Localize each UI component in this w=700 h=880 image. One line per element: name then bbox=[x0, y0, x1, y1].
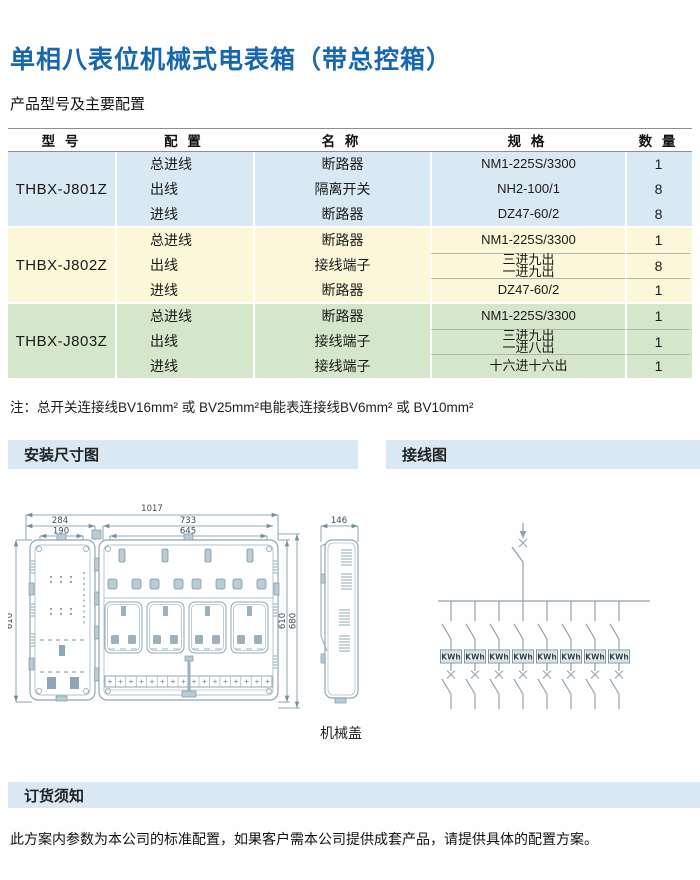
spec-cell: DZ47-60/2 bbox=[430, 278, 625, 303]
model-number: THBX-J801Z bbox=[8, 152, 115, 226]
qty-cell: 1 bbox=[625, 228, 690, 253]
spec-cell: 三进九出 一进八出 bbox=[430, 329, 625, 354]
model-number: THBX-J802Z bbox=[8, 228, 115, 302]
name-cell: 断路器 bbox=[253, 228, 430, 253]
table-group-thbx-j803z: THBX-J803Z 总进线 断路器 NM1-225S/3300 1 出线 接线… bbox=[8, 302, 692, 378]
table-row: 总进线 断路器 NM1-225S/3300 1 bbox=[117, 152, 692, 177]
config-cell: 总进线 bbox=[117, 152, 253, 177]
name-cell: 断路器 bbox=[253, 304, 430, 329]
section-bar-install-dimensions: 安装尺寸图 bbox=[8, 440, 358, 469]
name-cell: 隔离开关 bbox=[253, 177, 430, 202]
qty-cell: 8 bbox=[625, 253, 690, 278]
table-group-thbx-j802z: THBX-J802Z 总进线 断路器 NM1-225S/3300 1 出线 接线… bbox=[8, 226, 692, 302]
qty-cell: 1 bbox=[625, 329, 690, 354]
section-title-wiring: 接线图 bbox=[402, 444, 447, 465]
config-cell: 进线 bbox=[117, 354, 253, 379]
name-cell: 接线端子 bbox=[253, 354, 430, 379]
spec-cell: NM1-225S/3300 bbox=[430, 228, 625, 253]
column-header-model: 型 号 bbox=[8, 130, 115, 150]
table-row: 总进线 断路器 NM1-225S/3300 1 bbox=[117, 304, 692, 329]
config-cell: 出线 bbox=[117, 329, 253, 354]
dim-right-outer: 733 bbox=[180, 516, 196, 526]
section-bar-ordering-notes: 订货须知 bbox=[8, 782, 700, 808]
incoming-feeder bbox=[512, 523, 527, 601]
name-cell: 接线端子 bbox=[253, 329, 430, 354]
meter-branches bbox=[441, 601, 630, 709]
qty-cell: 8 bbox=[625, 177, 690, 202]
qty-cell: 1 bbox=[625, 354, 690, 379]
table-header-row: 型 号 配 置 名 称 规 格 数 量 bbox=[8, 129, 692, 152]
table-row: 出线 隔离开关 NH2-100/1 8 bbox=[117, 177, 692, 202]
table-row: 出线 接线端子 三进九出 一进八出 1 bbox=[117, 329, 692, 354]
name-cell: 断路器 bbox=[253, 278, 430, 303]
name-cell: 接线端子 bbox=[253, 253, 430, 278]
qty-cell: 1 bbox=[625, 152, 690, 177]
column-header-qty: 数 量 bbox=[625, 130, 692, 150]
table-row: 出线 接线端子 三进九出 一进九出 8 bbox=[117, 253, 692, 278]
dim-side-depth: 146 bbox=[331, 516, 347, 526]
wiring-note: 注：总开关连接线BV16mm² 或 BV25mm²电能表连接线BV6mm² 或 … bbox=[10, 396, 474, 416]
table-group-thbx-j801z: THBX-J801Z 总进线 断路器 NM1-225S/3300 1 出线 隔离… bbox=[8, 152, 692, 226]
table-row: 进线 断路器 DZ47-60/2 1 bbox=[117, 278, 692, 303]
name-cell: 断路器 bbox=[253, 201, 430, 226]
section-bar-wiring-diagram: 接线图 bbox=[386, 440, 700, 469]
spec-cell: DZ47-60/2 bbox=[430, 201, 625, 226]
column-header-spec: 规 格 bbox=[430, 130, 625, 150]
qty-cell: 8 bbox=[625, 201, 690, 226]
dim-height-total: 680 bbox=[289, 613, 299, 629]
qty-cell: 1 bbox=[625, 304, 690, 329]
ordering-note-text: 此方案内参数为本公司的标准配置，如果客户需本公司提供成套产品，请提供具体的配置方… bbox=[10, 829, 598, 849]
config-cell: 总进线 bbox=[117, 304, 253, 329]
spec-cell: 十六进十六出 bbox=[430, 354, 625, 379]
product-config-table: 型 号 配 置 名 称 规 格 数 量 THBX-J801Z 总进线 断路器 N… bbox=[8, 128, 692, 378]
meter-box-front-view bbox=[99, 534, 279, 700]
config-cell: 总进线 bbox=[117, 228, 253, 253]
qty-cell: 1 bbox=[625, 278, 690, 303]
spec-cell: NM1-225S/3300 bbox=[430, 152, 625, 177]
spec-cell: NH2-100/1 bbox=[430, 177, 625, 202]
config-cell: 出线 bbox=[117, 177, 253, 202]
column-header-name: 名 称 bbox=[253, 130, 430, 150]
column-header-config: 配 置 bbox=[115, 130, 253, 150]
config-cell: 进线 bbox=[117, 278, 253, 303]
section-title-order: 订货须知 bbox=[24, 785, 84, 806]
config-cell: 出线 bbox=[117, 253, 253, 278]
page-subtitle: 产品型号及主要配置 bbox=[10, 93, 145, 114]
wiring-diagram: KWh bbox=[395, 490, 695, 730]
dim-height-left: 610 bbox=[8, 613, 15, 629]
page-title: 单相八表位机械式电表箱（带总控箱） bbox=[10, 40, 452, 76]
dim-overall-width: 1017 bbox=[141, 504, 163, 514]
control-box-front-view bbox=[29, 534, 95, 701]
section-title-install: 安装尺寸图 bbox=[24, 444, 99, 465]
installation-dimension-drawing: 1017 284 190 733 645 146 610 610 680 bbox=[8, 488, 380, 750]
spec-cell: NM1-225S/3300 bbox=[430, 304, 625, 329]
meter-box-side-view bbox=[321, 540, 358, 703]
page: 单相八表位机械式电表箱（带总控箱） 产品型号及主要配置 型 号 配 置 名 称 … bbox=[0, 0, 700, 880]
mechanical-cover-label: 机械盖 bbox=[320, 725, 362, 741]
name-cell: 断路器 bbox=[253, 152, 430, 177]
dim-height-right: 610 bbox=[278, 613, 288, 629]
config-cell: 进线 bbox=[117, 201, 253, 226]
table-row: 进线 接线端子 十六进十六出 1 bbox=[117, 354, 692, 379]
spec-cell: 三进九出 一进九出 bbox=[430, 253, 625, 278]
dim-left-outer: 284 bbox=[52, 516, 68, 526]
table-row: 总进线 断路器 NM1-225S/3300 1 bbox=[117, 228, 692, 253]
model-number: THBX-J803Z bbox=[8, 304, 115, 378]
table-row: 进线 断路器 DZ47-60/2 8 bbox=[117, 201, 692, 226]
